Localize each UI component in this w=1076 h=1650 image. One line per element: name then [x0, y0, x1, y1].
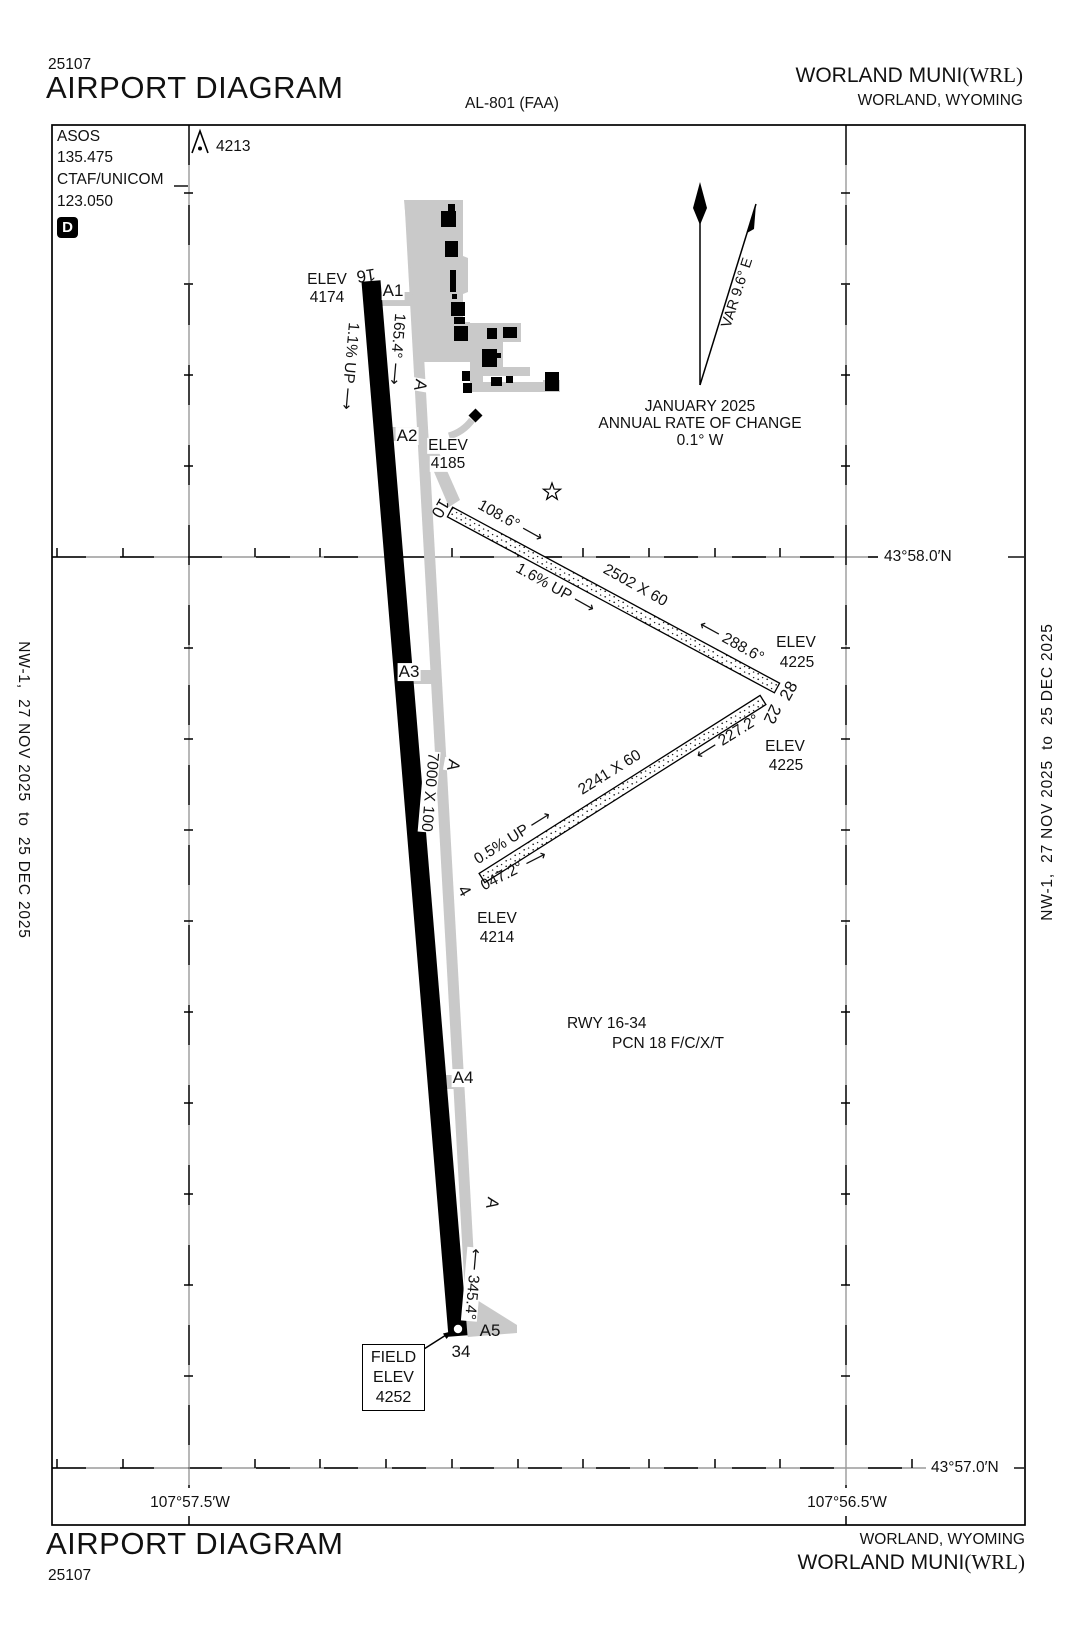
- airport-icao-text: (WRL): [962, 63, 1023, 87]
- rwy22-elev-label: ELEV: [765, 739, 805, 755]
- asos-frequency: 135.475: [57, 150, 113, 166]
- ctaf-frequency: 123.050: [57, 194, 113, 210]
- rwy16-elev-value: 4174: [310, 290, 344, 306]
- taxiway-a4-label: A4: [452, 1069, 475, 1087]
- airport-city-bottom: WORLAND, WYOMING: [860, 1532, 1025, 1548]
- field-elev-line3: 4252: [376, 1388, 412, 1408]
- obstacle-icon: [192, 131, 208, 153]
- latitude-top-label: 43°58.0′N: [884, 549, 952, 565]
- page-title-top: AIRPORT DIAGRAM: [46, 72, 343, 105]
- rwy4-elev-value: 4214: [480, 930, 514, 946]
- taxiway-a5-label: A5: [480, 1322, 501, 1340]
- airport-icao-bottom-text: (WRL): [964, 1550, 1025, 1574]
- airport-name-bottom-text: WORLAND MUNI: [798, 1551, 965, 1574]
- airport-name-bottom: WORLAND MUNI(WRL): [798, 1551, 1026, 1574]
- annual-rate-value: 0.1° W: [677, 433, 724, 449]
- airport-diagram-page: 25107 AIRPORT DIAGRAM AL-801 (FAA) WORLA…: [0, 0, 1076, 1650]
- rwy28-elev-value: 4225: [780, 655, 814, 671]
- rwy-pcn-line2: PCN 18 F/C/X/T: [612, 1036, 724, 1052]
- taxiway-a-label-1: A: [410, 377, 430, 393]
- margin-note-left: NW-1, 27 NOV 2025 to 25 DEC 2025: [15, 641, 31, 938]
- rwy-pcn-line1: RWY 16-34: [567, 1016, 647, 1032]
- taxiway-a-label-2: A: [443, 757, 463, 773]
- chart-number-bottom: 25107: [48, 1568, 91, 1584]
- beacon-star-icon: [543, 483, 560, 499]
- delta-symbol-badge: D: [57, 217, 78, 238]
- page-title-bottom: AIRPORT DIAGRAM: [46, 1528, 343, 1561]
- variation-date: JANUARY 2025: [645, 399, 756, 415]
- latitude-bottom-label: 43°57.0′N: [931, 1460, 999, 1476]
- procedure-id: AL-801 (FAA): [465, 96, 559, 112]
- longitude-left-label: 107°57.5′W: [150, 1495, 230, 1511]
- annual-rate-label: ANNUAL RATE OF CHANGE: [598, 416, 801, 432]
- asos-label: ASOS: [57, 129, 100, 145]
- airport-city-top: WORLAND, WYOMING: [858, 93, 1023, 109]
- rwy16-number: 16: [355, 265, 376, 285]
- taxiway-a-label-3: A: [482, 1195, 502, 1211]
- margin-note-right: NW-1, 27 NOV 2025 to 25 DEC 2025: [1040, 623, 1056, 920]
- field-elev-arrow: [424, 1331, 453, 1349]
- obstacle-elevation: 4213: [216, 139, 250, 155]
- taxiway-a3-label: A3: [398, 663, 421, 681]
- rwy28-elev-label: ELEV: [776, 635, 816, 651]
- taxiway-a1-label: A1: [382, 282, 405, 300]
- ctaf-label: CTAF/UNICOM: [57, 172, 163, 188]
- rwy16-elev-label: ELEV: [307, 272, 347, 288]
- rwy4-elev-label: ELEV: [477, 911, 517, 927]
- hangar-stub: [449, 420, 472, 436]
- field-elev-line1: FIELD: [371, 1348, 416, 1368]
- field-elevation-box: FIELD ELEV 4252: [362, 1344, 425, 1411]
- apron-loop: [483, 367, 530, 376]
- airport-name-text: WORLAND MUNI: [796, 64, 963, 87]
- runway-4-22: [479, 695, 766, 882]
- airport-name-top: WORLAND MUNI(WRL): [796, 64, 1024, 87]
- rwy10-elev-value: 4185: [430, 456, 466, 472]
- runway-10-28: [447, 507, 779, 693]
- rwy34-number: 34: [452, 1343, 471, 1361]
- taxiway-a2-label: A2: [396, 427, 419, 445]
- rwy22-elev-value: 4225: [769, 758, 803, 774]
- field-elevation-point: [454, 1325, 462, 1333]
- longitude-right-label: 107°56.5′W: [807, 1495, 887, 1511]
- rwy10-elev-label: ELEV: [427, 438, 469, 454]
- field-elev-line2: ELEV: [373, 1368, 414, 1388]
